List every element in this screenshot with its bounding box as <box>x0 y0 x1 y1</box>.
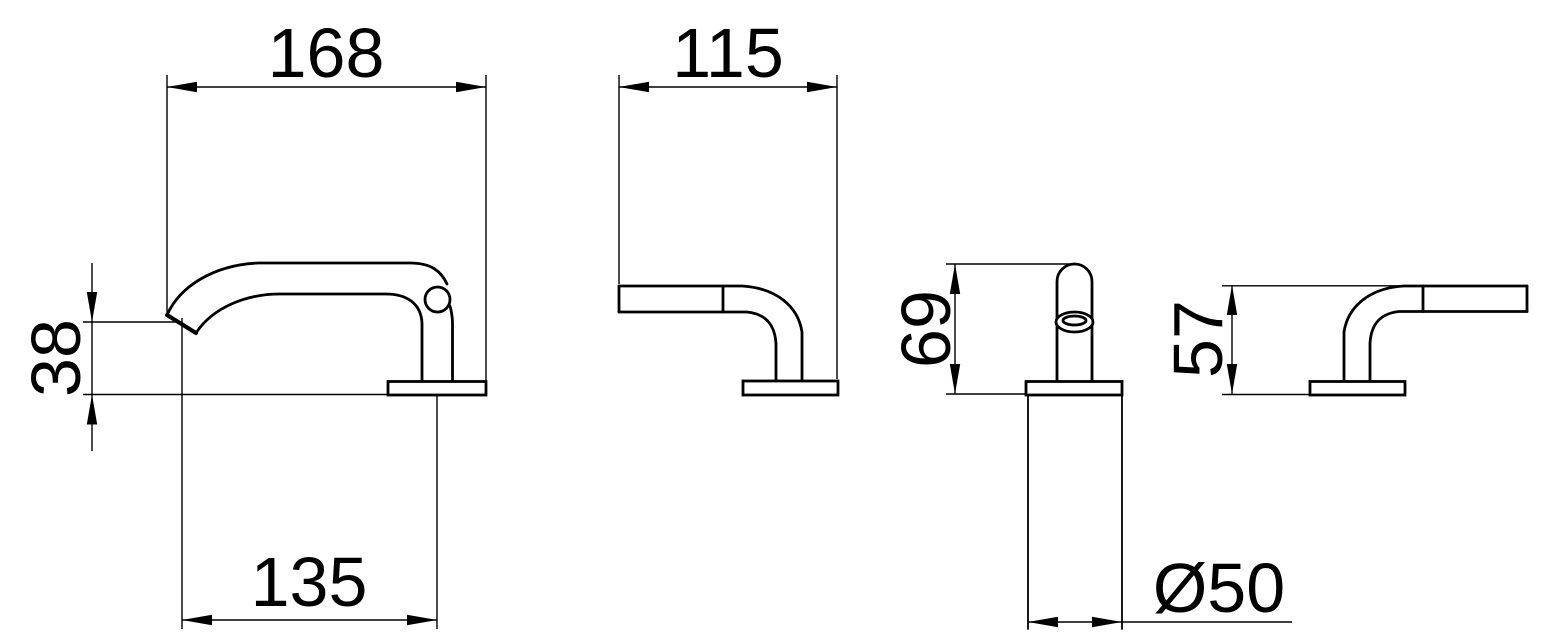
dimension-handle-length: 115 <box>619 14 837 379</box>
dim-label-base-diameter: Ø50 <box>1153 549 1285 627</box>
dim-label-handle-height: 69 <box>887 290 965 368</box>
handle-right-side-view <box>1310 286 1527 395</box>
spout-body-right-side <box>450 306 453 380</box>
arrow-left-icon <box>167 82 197 92</box>
handle-front-view <box>1026 264 1122 629</box>
arrow-left-icon <box>619 82 649 92</box>
dimension-base-diameter: Ø50 <box>1028 549 1292 627</box>
dim-label-handle-length: 115 <box>672 14 784 92</box>
spout-inner-contour <box>196 294 422 380</box>
dim-label-spout-length: 168 <box>268 14 385 92</box>
dimension-spout-length: 168 <box>167 14 486 380</box>
dim-label-handle-right-height: 57 <box>1159 300 1237 378</box>
arrow-right-icon <box>456 82 486 92</box>
handle-inner-contour <box>1370 312 1527 381</box>
handle-front-base-plate <box>1026 382 1122 396</box>
handle-inner-contour <box>619 312 776 380</box>
arrow-up-icon <box>950 264 960 294</box>
spout-pivot-circle <box>425 287 450 312</box>
arrow-left-icon <box>1028 617 1058 627</box>
arrow-right-icon <box>807 82 837 92</box>
arrow-right-icon <box>1092 617 1122 627</box>
spout-side-view <box>167 263 486 395</box>
dimension-spout-reach: 135 <box>182 318 437 629</box>
arrow-right-icon <box>407 615 437 625</box>
dim-label-spout-outlet-height: 38 <box>17 319 95 397</box>
technical-drawing-page: 168 38 135 115 <box>0 0 1553 638</box>
spout-base-plate <box>388 382 486 396</box>
handle-right-base-plate <box>1310 382 1405 396</box>
dimension-spout-outlet-height: 38 <box>17 263 388 451</box>
faucet-dimension-drawing: 168 38 135 115 <box>0 0 1553 638</box>
handle-left-side-view <box>619 286 838 395</box>
arrow-left-icon <box>182 615 212 625</box>
dimension-handle-height: 69 <box>887 264 1077 394</box>
arrow-down-icon <box>87 292 97 322</box>
dim-label-spout-reach: 135 <box>251 543 368 621</box>
handle-base-plate <box>743 381 838 395</box>
spout-outer-contour <box>167 263 447 315</box>
arrow-up-icon <box>87 395 97 425</box>
